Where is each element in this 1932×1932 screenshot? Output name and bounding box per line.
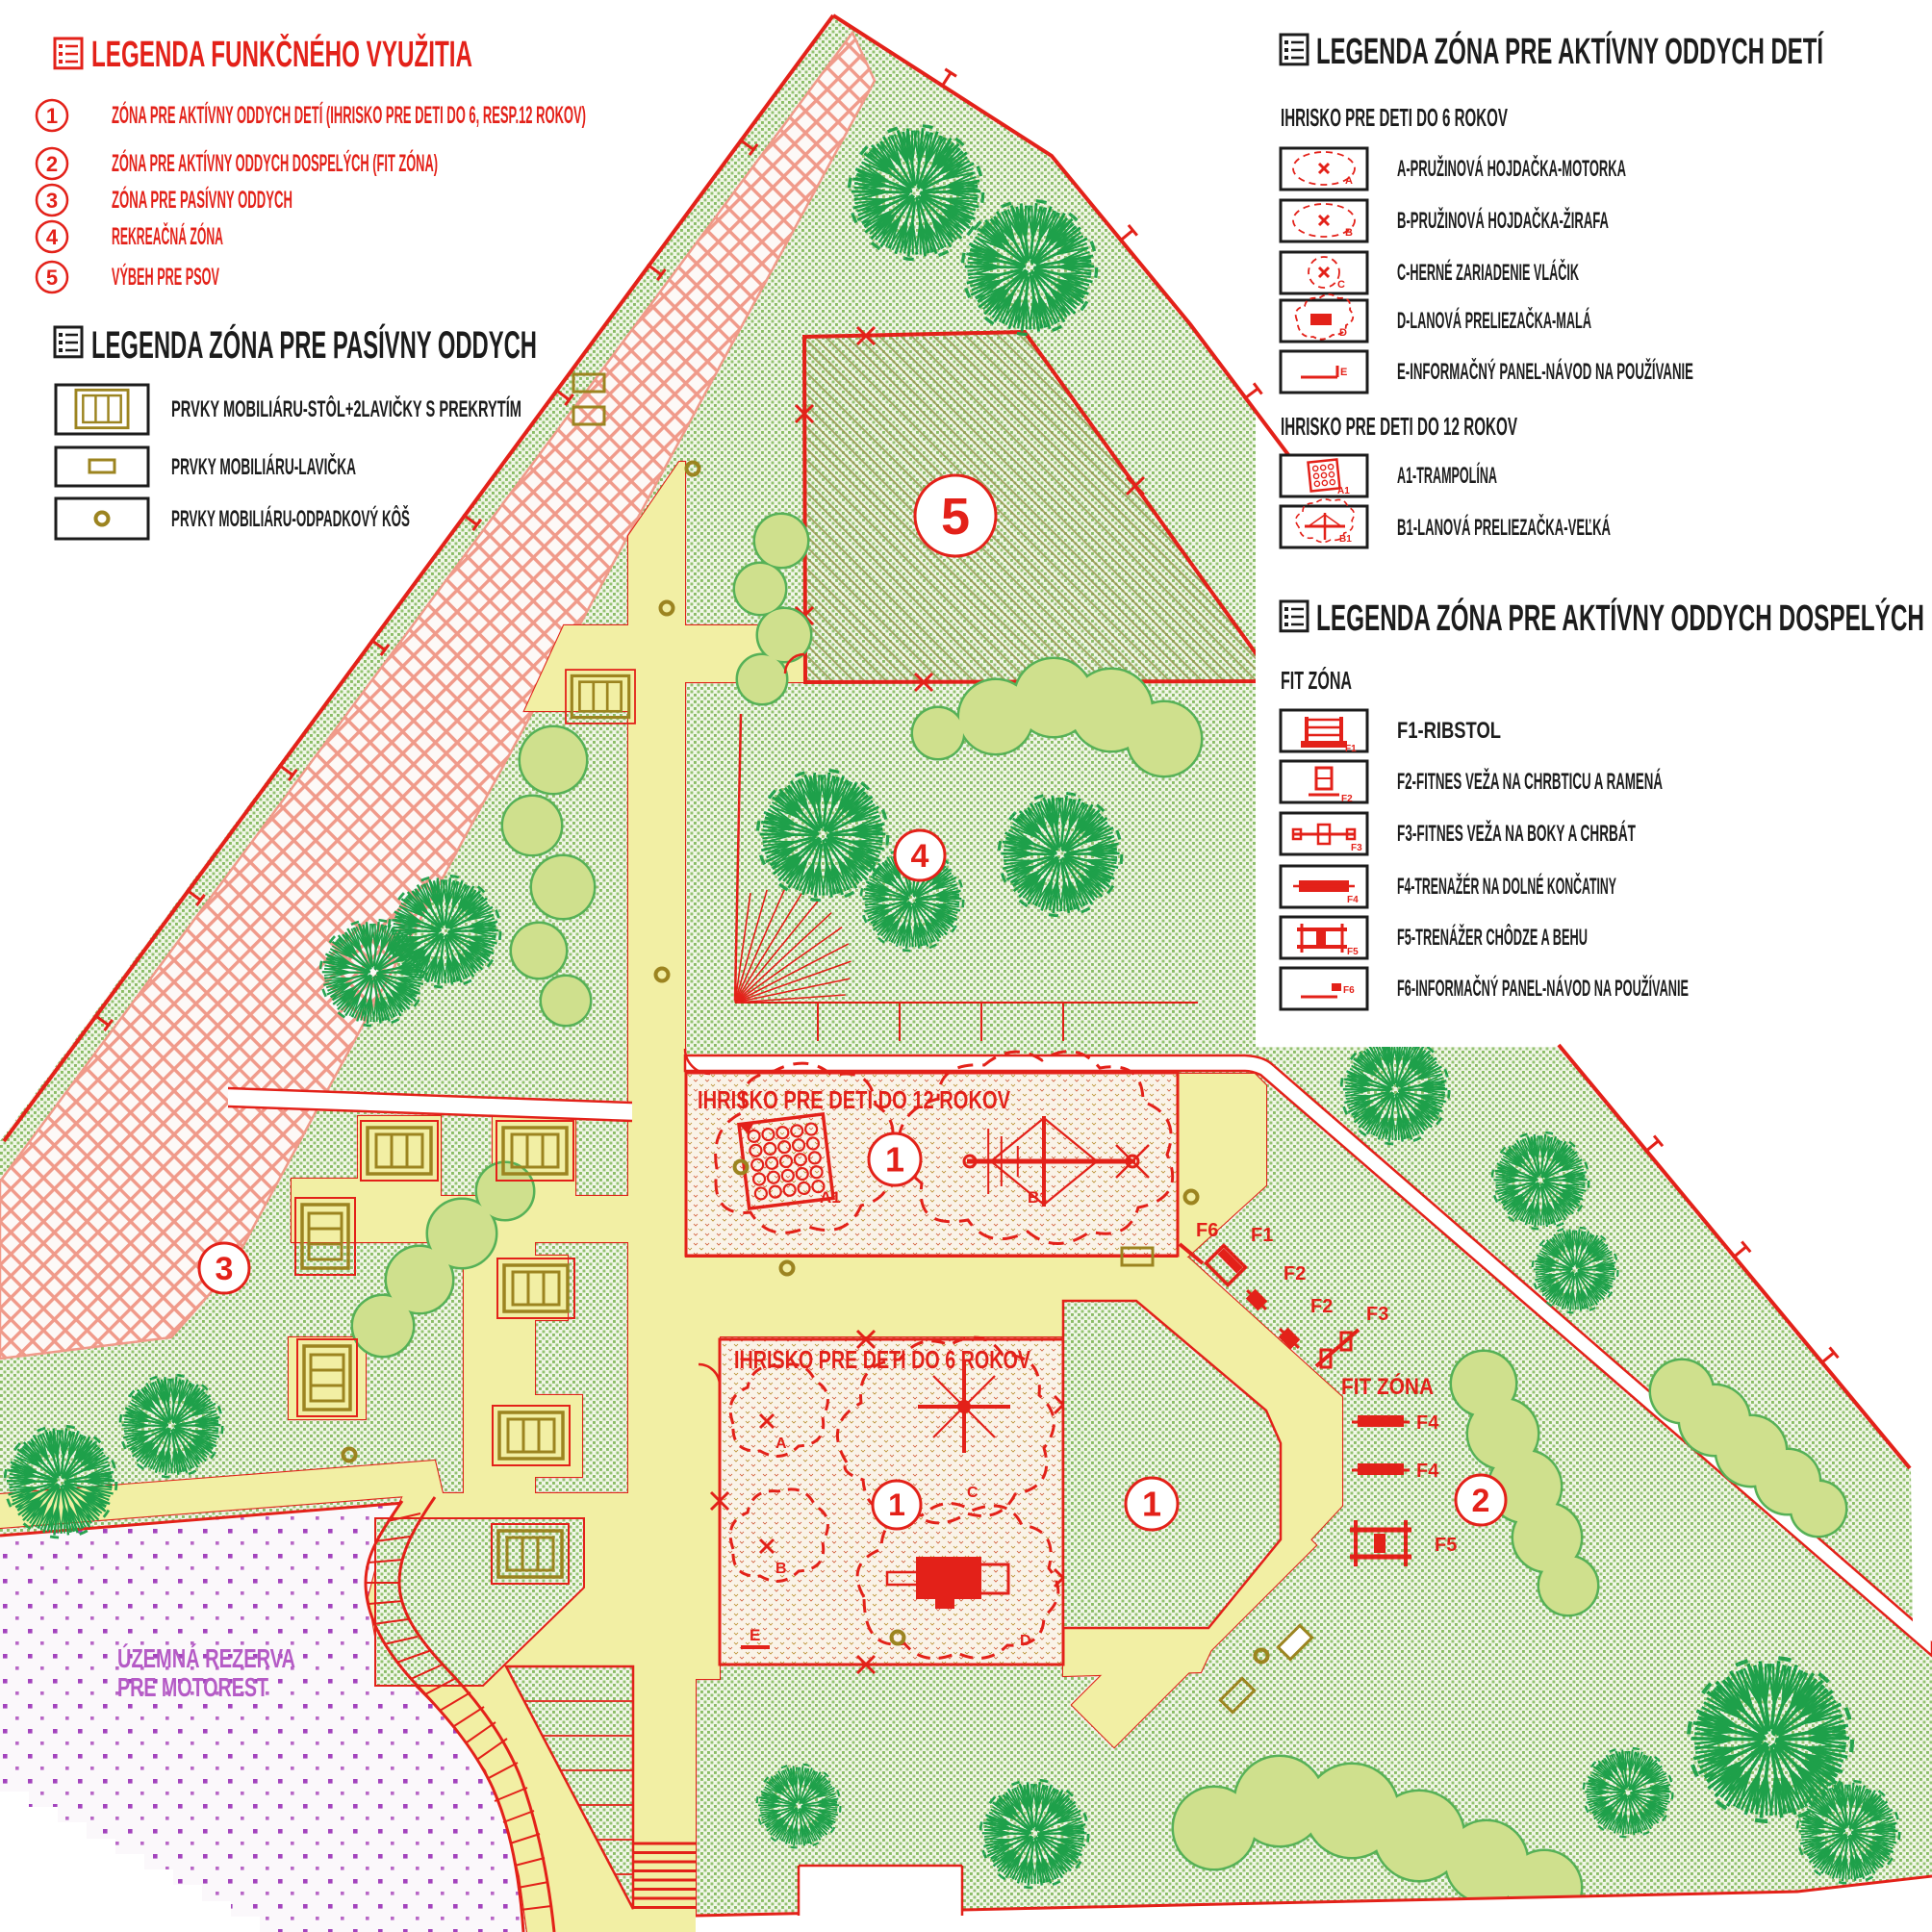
svg-text:D-LANOVÁ PRELIEZAČKA-MALÁ: D-LANOVÁ PRELIEZAČKA-MALÁ: [1397, 307, 1591, 334]
svg-text:2: 2: [46, 152, 58, 176]
svg-text:A: A: [775, 1436, 787, 1452]
svg-text:ZÓNA PRE PASÍVNY ODDYCH: ZÓNA PRE PASÍVNY ODDYCH: [112, 185, 292, 214]
svg-text:IHRISKO PRE DETI DO 12 ROKOV: IHRISKO PRE DETI DO 12 ROKOV: [1281, 412, 1517, 441]
svg-text:E: E: [750, 1626, 760, 1644]
svg-text:B: B: [775, 1561, 787, 1577]
svg-text:F4: F4: [1416, 1461, 1439, 1482]
svg-text:5: 5: [941, 488, 970, 546]
svg-text:F4: F4: [1416, 1412, 1439, 1434]
svg-text:PRVKY MOBILIÁRU-LAVIČKA: PRVKY MOBILIÁRU-LAVIČKA: [171, 453, 356, 480]
svg-text:1: 1: [888, 1487, 905, 1522]
svg-text:F2-FITNES VEŽA NA CHRBTICU A R: F2-FITNES VEŽA NA CHRBTICU A RAMENÁ: [1397, 768, 1663, 795]
svg-text:F4: F4: [1347, 895, 1359, 905]
svg-text:E: E: [1340, 367, 1347, 378]
svg-text:C: C: [1337, 279, 1345, 291]
svg-text:F6: F6: [1196, 1220, 1218, 1241]
svg-text:FIT ZÓNA: FIT ZÓNA: [1341, 1373, 1434, 1400]
svg-text:PRE MOTOREST: PRE MOTOREST: [117, 1672, 268, 1702]
svg-text:LEGENDA ZÓNA PRE PASÍVNY ODDYC: LEGENDA ZÓNA PRE PASÍVNY ODDYCH: [91, 322, 537, 367]
svg-text:ZÓNA PRE AKTÍVNY ODDYCH DETÍ (: ZÓNA PRE AKTÍVNY ODDYCH DETÍ (IHRISKO PR…: [112, 100, 586, 129]
svg-text:3: 3: [46, 189, 58, 213]
svg-text:A: A: [1345, 175, 1353, 187]
svg-text:IHRISKO PRE DETI DO 6 ROKOV: IHRISKO PRE DETI DO 6 ROKOV: [734, 1345, 1030, 1374]
svg-text:1: 1: [1142, 1485, 1161, 1524]
svg-text:ZÓNA PRE AKTÍVNY ODDYCH DOSPEL: ZÓNA PRE AKTÍVNY ODDYCH DOSPELÝCH (FIT Z…: [112, 148, 438, 177]
svg-text:ÚZEMNÁ REZERVA: ÚZEMNÁ REZERVA: [117, 1643, 295, 1673]
svg-text:F4-TRENAŽÉR NA DOLNÉ KONČATINY: F4-TRENAŽÉR NA DOLNÉ KONČATINY: [1397, 873, 1616, 900]
svg-text:B1: B1: [1028, 1188, 1049, 1207]
svg-text:A1-TRAMPOLÍNA: A1-TRAMPOLÍNA: [1397, 462, 1497, 489]
svg-text:F6: F6: [1343, 985, 1355, 996]
svg-text:A1: A1: [820, 1188, 841, 1207]
svg-text:LEGENDA ZÓNA PRE AKTÍVNY ODDYC: LEGENDA ZÓNA PRE AKTÍVNY ODDYCH DOSPELÝC…: [1316, 597, 1924, 639]
svg-text:C: C: [967, 1485, 979, 1501]
svg-text:B1-LANOVÁ PRELIEZAČKA-VEĽKÁ: B1-LANOVÁ PRELIEZAČKA-VEĽKÁ: [1397, 514, 1611, 541]
svg-text:F2: F2: [1341, 794, 1353, 804]
svg-text:F3: F3: [1351, 843, 1362, 853]
svg-text:F1: F1: [1251, 1225, 1273, 1246]
svg-text:B1: B1: [1339, 534, 1352, 545]
svg-text:F5-TRENÁŽER CHÔDZE A BEHU: F5-TRENÁŽER CHÔDZE A BEHU: [1397, 924, 1588, 951]
svg-text:IHRISKO PRE DETI DO 6 ROKOV: IHRISKO PRE DETI DO 6 ROKOV: [1281, 103, 1508, 132]
svg-text:F2: F2: [1310, 1296, 1333, 1317]
svg-text:D: D: [1339, 327, 1347, 339]
svg-text:REKREAČNÁ ZÓNA: REKREAČNÁ ZÓNA: [112, 221, 223, 250]
svg-text:D: D: [1020, 1633, 1031, 1649]
svg-text:FIT ZÓNA: FIT ZÓNA: [1281, 666, 1352, 695]
svg-text:A1: A1: [1337, 486, 1350, 496]
svg-text:B-PRUŽINOVÁ HOJDAČKA-ŽIRAFA: B-PRUŽINOVÁ HOJDAČKA-ŽIRAFA: [1397, 207, 1609, 234]
svg-text:E-INFORMAČNÝ PANEL-NÁVOD NA PO: E-INFORMAČNÝ PANEL-NÁVOD NA POUŽÍVANIE: [1397, 358, 1693, 385]
svg-text:A-PRUŽINOVÁ HOJDAČKA-MOTORKA: A-PRUŽINOVÁ HOJDAČKA-MOTORKA: [1397, 155, 1626, 182]
svg-text:F3-FITNES VEŽA NA BOKY A CHRBÁ: F3-FITNES VEŽA NA BOKY A CHRBÁT: [1397, 820, 1636, 847]
svg-text:F5: F5: [1347, 947, 1359, 957]
svg-text:3: 3: [216, 1251, 234, 1287]
svg-text:F1: F1: [1345, 744, 1357, 754]
svg-text:4: 4: [46, 225, 59, 249]
svg-text:1: 1: [46, 104, 58, 128]
svg-text:4: 4: [911, 838, 929, 875]
svg-text:F6-INFORMAČNÝ PANEL-NÁVOD NA P: F6-INFORMAČNÝ PANEL-NÁVOD NA POUŽÍVANIE: [1397, 975, 1689, 1002]
svg-text:F3: F3: [1366, 1304, 1388, 1325]
svg-text:VÝBEH PRE PSOV: VÝBEH PRE PSOV: [112, 262, 219, 291]
svg-text:LEGENDA ZÓNA PRE AKTÍVNY ODDYC: LEGENDA ZÓNA PRE AKTÍVNY ODDYCH DETÍ: [1316, 30, 1824, 72]
svg-text:1: 1: [885, 1140, 904, 1180]
svg-text:PRVKY MOBILIÁRU-STÔL+2LAVIČKY: PRVKY MOBILIÁRU-STÔL+2LAVIČKY S PREKRYTÍ…: [171, 395, 521, 422]
svg-text:F2: F2: [1284, 1263, 1306, 1284]
svg-text:F1-RIBSTOL: F1-RIBSTOL: [1397, 718, 1501, 744]
svg-text:2: 2: [1472, 1483, 1490, 1519]
svg-text:B: B: [1345, 227, 1353, 239]
svg-text:LEGENDA FUNKČNÉHO VYUŽITIA: LEGENDA FUNKČNÉHO VYUŽITIA: [91, 32, 472, 75]
svg-text:5: 5: [46, 266, 58, 290]
svg-text:PRVKY MOBILIÁRU-ODPADKOVÝ KÔŠ: PRVKY MOBILIÁRU-ODPADKOVÝ KÔŠ: [171, 505, 410, 532]
svg-text:C-HERNÉ ZARIADENIE VLÁČIK: C-HERNÉ ZARIADENIE VLÁČIK: [1397, 259, 1579, 286]
svg-text:F5: F5: [1435, 1535, 1457, 1556]
